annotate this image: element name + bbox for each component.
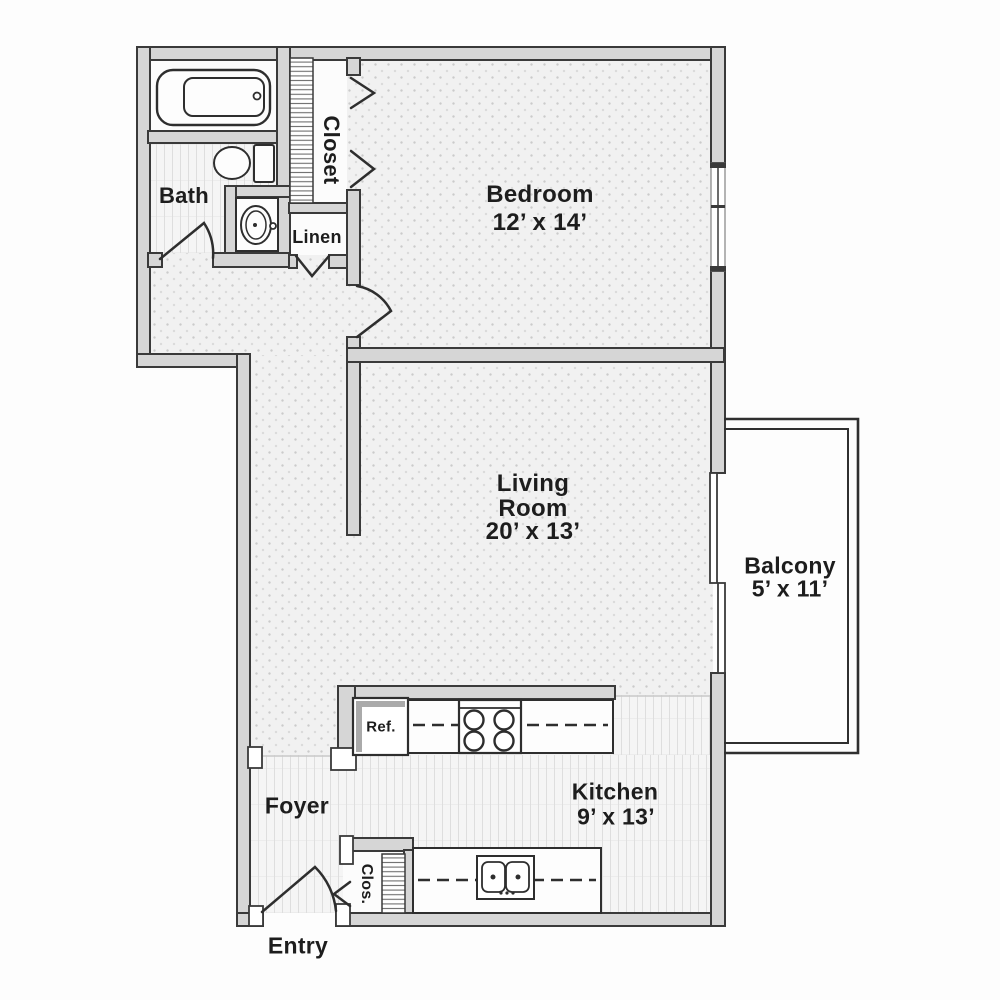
floor-plan: Bath Closet Linen Bedroom 12’ x 14’ Livi…	[0, 0, 1000, 1000]
small-closet-shelf-hatch	[382, 854, 405, 913]
bathtub	[157, 70, 270, 125]
sink-drain	[253, 223, 257, 227]
room-dims-balcony: 5’ x 11’	[752, 578, 829, 601]
sink-drain	[491, 875, 496, 880]
wall-east-lower	[711, 673, 725, 926]
room-dims-living: 20’ x 13’	[486, 520, 581, 544]
sliding-door-panel-inner	[718, 583, 725, 673]
room-label-bedroom: Bedroom	[486, 183, 593, 207]
linen-door-chevron	[296, 256, 329, 276]
sliding-door-panel-outer	[710, 473, 717, 583]
bath-door-swing	[160, 223, 213, 259]
room-label-living-line1: Living	[497, 472, 569, 496]
wall-tub-divider	[148, 131, 290, 143]
closet-shelf-hatch	[290, 58, 313, 203]
wall-hall-partition	[347, 337, 360, 535]
faucet-dot	[511, 891, 514, 894]
toilet	[214, 145, 274, 182]
sliding-door	[710, 473, 725, 673]
room-label-entry: Entry	[268, 935, 328, 958]
bathroom-sink	[236, 198, 278, 251]
wall-bath-bottom	[213, 253, 290, 267]
toilet-tank	[254, 145, 274, 182]
kitchen-counter-lower	[413, 848, 601, 913]
closet-door-chevron	[351, 151, 374, 187]
wall-top	[137, 47, 725, 60]
faucet-dot	[499, 891, 502, 894]
faucet-dot	[505, 891, 508, 894]
bedroom-door-swing	[357, 286, 391, 337]
stove	[459, 700, 521, 753]
foyer-opening-jamb-left	[248, 747, 262, 768]
sink-faucet	[270, 223, 276, 229]
room-dims-bedroom: 12’ x 14’	[493, 211, 588, 235]
wall-left-lower	[237, 354, 250, 926]
kitchen-sink	[477, 856, 534, 899]
bedroom-window	[710, 163, 726, 271]
room-label-balcony: Balcony	[744, 555, 836, 578]
room-label-linen: Linen	[292, 228, 342, 246]
toilet-bowl	[214, 147, 250, 179]
closet-door-chevron	[351, 78, 374, 108]
room-dims-kitchen: 9’ x 13’	[577, 806, 655, 829]
entry-jamb-right	[336, 904, 350, 926]
small-closet-jamb	[340, 836, 353, 864]
wall-left-upper	[137, 47, 150, 367]
entry-jamb-left	[249, 906, 263, 926]
small-closet-door-chevron	[334, 882, 350, 906]
room-label-small-closet: Clos.	[358, 864, 374, 905]
wall-closet-jamb-top	[347, 58, 360, 75]
wall-step	[137, 354, 250, 367]
wall-east-middle	[711, 271, 725, 473]
wall-bedroom-living-divider	[347, 348, 724, 362]
sink-drain	[516, 875, 521, 880]
wall-bottom-right	[336, 913, 725, 926]
room-label-bath: Bath	[159, 185, 209, 207]
wall-east-upper	[711, 47, 725, 163]
bathtub-drain	[254, 93, 261, 100]
wall-linen-east	[347, 190, 360, 285]
room-label-kitchen: Kitchen	[572, 781, 658, 804]
wall-alcove-left	[225, 186, 236, 253]
room-label-closet: Closet	[320, 115, 342, 184]
refrigerator-label: Ref.	[366, 720, 396, 735]
entry-door-swing	[262, 867, 336, 912]
room-label-foyer: Foyer	[265, 795, 329, 818]
